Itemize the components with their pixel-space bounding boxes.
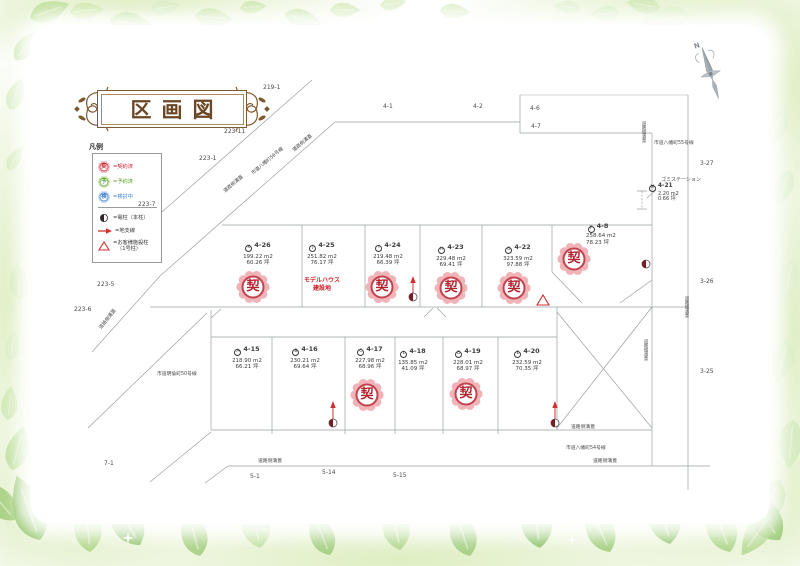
lot-letter-badge: F (588, 226, 595, 233)
facility-pole-triangle-icon (98, 241, 110, 251)
parcel-number: 7-1 (104, 460, 114, 467)
parcel-number: 4-2 (473, 103, 483, 110)
contract-mini-stamp-icon: 契 (98, 161, 110, 173)
map-lines (0, 0, 800, 566)
legend-heading: 凡例 (89, 142, 103, 152)
contract-stamp-4-8: 契 (556, 241, 592, 277)
parcel-number: 223-11 (224, 128, 245, 135)
lot-map-flyer: N (0, 0, 800, 566)
contract-stamp-4-26: 契 (235, 269, 271, 305)
lot-areas-4-8: 258.64 m278.23 坪 (586, 233, 638, 246)
lot-letter-badge: H (438, 247, 445, 254)
parcel-number: 4-7 (531, 123, 541, 130)
facility-pole-triangle-icon (537, 295, 549, 305)
legend-item-guy-wire: =地支線 (98, 224, 157, 237)
considering-mini-stamp-icon: 検 (98, 191, 110, 203)
lot-letter-badge: M (649, 185, 656, 192)
lot-letter-badge: D (455, 351, 462, 358)
lot-letter-badge: E (514, 351, 521, 358)
parcel-number: 3-27 (700, 160, 714, 167)
road-gutter-label: 道路側溝蓋 (258, 457, 282, 464)
lot-label-4-16: B4-16 230.21 m269.64 坪 (275, 345, 335, 371)
parcel-number: 223-5 (97, 281, 114, 288)
road-gutter-label: 道路側溝蓋 (640, 121, 646, 143)
page-title-box: 区画図 (97, 90, 247, 128)
lot-letter-badge: L (400, 351, 407, 358)
parcel-number: 223-6 (74, 306, 91, 313)
utility-pole-icon (98, 213, 110, 223)
parcel-number: 3-25 (700, 368, 714, 375)
lot-label-4-26: K4-26 199.22 m260.26 坪 (228, 241, 288, 267)
lot-letter-badge: C (357, 349, 364, 356)
legend-item-facility-pole: =お客様施設柱（1号柱） (98, 237, 157, 254)
reserved-mini-stamp-icon: 予 (98, 176, 110, 188)
parcel-number: 3-26 (700, 278, 714, 285)
parcel-number: 223-7 (138, 201, 155, 208)
contract-stamp-4-19: 契 (448, 376, 484, 412)
road-gutter-label: 道路側溝蓋 (683, 296, 689, 318)
lot-letter-badge: B (292, 349, 299, 356)
lot-label-4-19: D4-19 228.01 m268.97 坪 (438, 347, 498, 373)
contract-stamp-4-24: 契 (364, 269, 400, 305)
parcel-number: 5-1 (250, 473, 260, 480)
lot-label-4-18: L4-18 135.85 m241.09 坪 (383, 347, 443, 373)
lot-letter-badge: A (234, 349, 241, 356)
contract-stamp-4-23: 契 (433, 270, 469, 306)
contract-stamp-4-17: 契 (349, 377, 385, 413)
road-label-yawata55: 市道八幡町55号線 (654, 139, 694, 146)
lot-label-4-24: I4-24 219.48 m266.39 坪 (358, 241, 418, 267)
road-gutter-label: 道路側溝蓋 (593, 457, 617, 464)
legend-item-pole: =電柱（本柱） (98, 211, 157, 224)
parcel-number: 5-15 (393, 472, 407, 479)
legend-item-reserved: 予 =予約済 (98, 174, 157, 189)
legend-box: 契 =契約済 予 =予約済 検 =検討中 =電柱（本柱） (92, 153, 162, 263)
road-label-meirin50: 市道明倫町50号線 (157, 370, 197, 377)
compass-rose-icon (692, 44, 728, 102)
legend-item-contracted: 契 =契約済 (98, 159, 157, 174)
parcel-number: 4-6 (530, 105, 540, 112)
model-house-note: モデルハウス建設地 (292, 277, 352, 292)
road-gutter-label: 道路側溝蓋 (571, 423, 595, 430)
parcel-number: 4-1 (383, 103, 393, 110)
guy-wire-arrow-icon (98, 227, 112, 235)
lot-letter-badge: K (245, 245, 252, 252)
lot-label-4-15: A4-15 218.90 m266.21 坪 (217, 345, 277, 371)
contract-stamp-4-22: 契 (496, 270, 532, 306)
lot-letter-badge: J (309, 245, 316, 252)
lot-letter-badge: G (505, 247, 512, 254)
lot-label-4-22: G4-22 323.59 m297.88 坪 (488, 243, 548, 269)
lot-label-4-8: F4-8 (568, 222, 628, 233)
lot-label-4-23: H4-23 229.48 m269.41 坪 (421, 243, 481, 269)
lot-letter-badge: I (375, 245, 382, 252)
page-title: 区画図 (121, 94, 224, 124)
lot-label-4-25: J4-25 251.82 m276.17 坪 (292, 241, 352, 267)
lot-label-4-21: M4-21 2.20 m20.66 坪 (649, 182, 705, 203)
parcel-number: 5-14 (322, 469, 336, 476)
lot-label-4-20: E4-20 232.59 m270.35 坪 (497, 347, 557, 373)
parcel-number: 223-1 (199, 155, 216, 162)
road-label-yawata54: 市道八幡町54号線 (566, 444, 606, 451)
road-gutter-label: 道路側溝蓋 (642, 339, 648, 361)
parcel-number: 219-1 (263, 84, 280, 91)
